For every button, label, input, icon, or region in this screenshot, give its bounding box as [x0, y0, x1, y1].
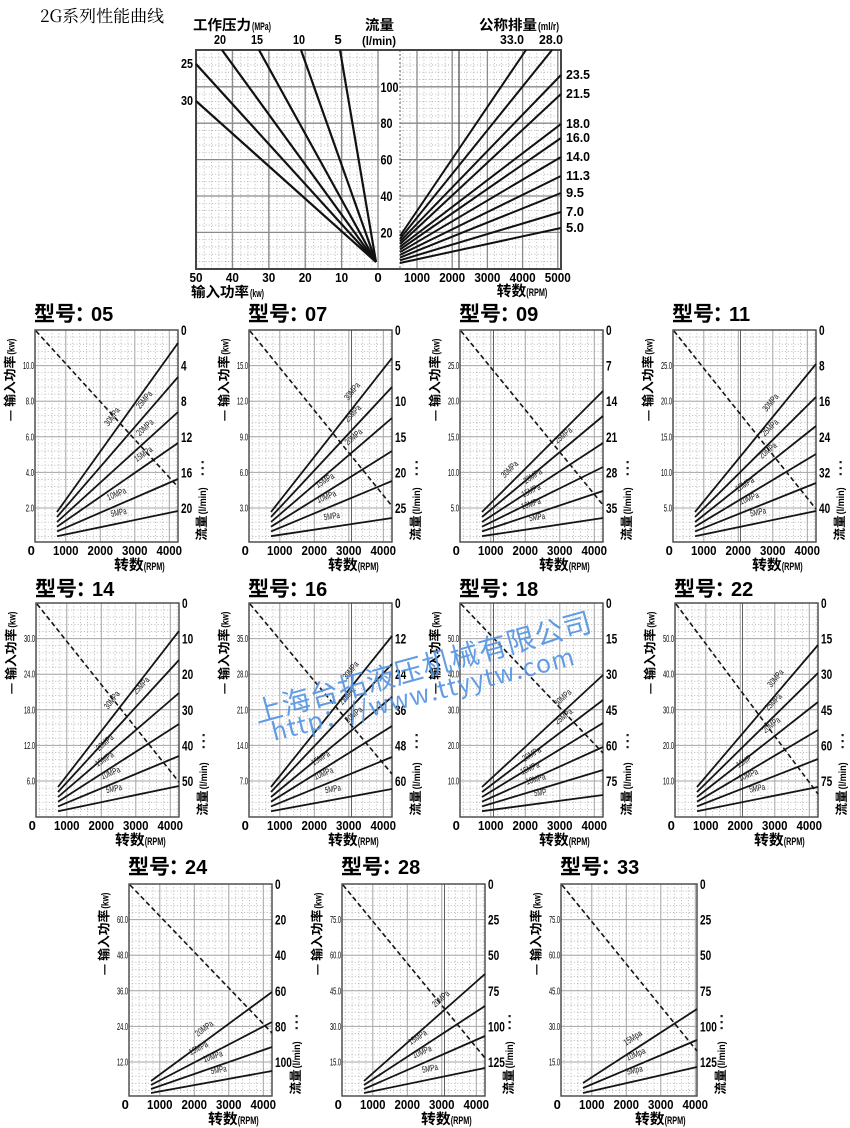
svg-text:45: 45	[821, 703, 833, 718]
svg-text:1000: 1000	[360, 1097, 386, 1112]
svg-text:5MPa: 5MPa	[323, 510, 340, 522]
svg-text:8: 8	[181, 394, 187, 409]
svg-text:8.0: 8.0	[26, 397, 34, 408]
svg-text:35: 35	[606, 501, 618, 516]
svg-text:30: 30	[262, 270, 275, 285]
svg-text:7: 7	[606, 359, 612, 374]
svg-text:4000: 4000	[464, 1097, 490, 1112]
svg-text:1000: 1000	[404, 270, 430, 285]
svg-text:12.0: 12.0	[117, 1058, 128, 1069]
svg-text:5Mpa: 5Mpa	[626, 1063, 644, 1076]
svg-text:0: 0	[29, 818, 36, 833]
svg-text:4000: 4000	[158, 818, 184, 833]
svg-text:100: 100	[700, 1019, 717, 1034]
svg-text:14.0: 14.0	[566, 149, 590, 164]
svg-text:50: 50	[190, 270, 203, 285]
svg-text:5.0: 5.0	[664, 504, 672, 515]
svg-text:3000: 3000	[336, 543, 362, 558]
svg-text:4000: 4000	[251, 1097, 276, 1112]
svg-text:2000: 2000	[439, 270, 465, 285]
svg-text:10MPa: 10MPa	[99, 764, 121, 781]
svg-text:6.0: 6.0	[240, 468, 248, 479]
svg-text:3000: 3000	[547, 543, 573, 558]
svg-text:0: 0	[28, 543, 35, 558]
svg-text:20: 20	[275, 913, 286, 928]
svg-text:5MPa: 5MPa	[528, 511, 545, 523]
svg-text:1000: 1000	[54, 818, 80, 833]
svg-text:40: 40	[381, 189, 393, 204]
svg-text:5MPa: 5MPa	[748, 782, 766, 795]
svg-text:3000: 3000	[123, 818, 149, 833]
svg-text:20.0: 20.0	[448, 397, 459, 408]
svg-text:2000: 2000	[728, 818, 754, 833]
svg-text:40: 40	[275, 948, 286, 963]
svg-text:0: 0	[275, 877, 281, 892]
svg-text:1000: 1000	[267, 543, 293, 558]
svg-text:6.0: 6.0	[26, 432, 34, 443]
svg-text:1000: 1000	[693, 818, 719, 833]
svg-text:28.0: 28.0	[539, 32, 563, 47]
svg-text:75: 75	[821, 774, 833, 789]
svg-text:0: 0	[606, 323, 612, 338]
svg-text:3.0: 3.0	[240, 504, 248, 515]
svg-text:15.0: 15.0	[549, 1058, 560, 1069]
svg-text:15: 15	[821, 632, 833, 647]
svg-text:05: 05	[91, 304, 113, 326]
svg-text:125: 125	[488, 1055, 505, 1070]
svg-text:12.0: 12.0	[237, 397, 248, 408]
svg-text:18.0: 18.0	[24, 705, 35, 716]
svg-text:3000: 3000	[336, 818, 362, 833]
svg-text:100: 100	[488, 1019, 505, 1034]
svg-text:09: 09	[516, 304, 538, 326]
svg-text:1000: 1000	[478, 543, 504, 558]
svg-text:0: 0	[242, 543, 249, 558]
svg-text:2000: 2000	[614, 1097, 640, 1112]
svg-text:2000: 2000	[302, 818, 328, 833]
svg-text:20.0: 20.0	[661, 397, 672, 408]
svg-text:0: 0	[335, 1097, 342, 1112]
svg-text:30.0: 30.0	[330, 1022, 341, 1033]
svg-text:75.0: 75.0	[330, 915, 341, 926]
svg-text:80: 80	[275, 1019, 286, 1034]
svg-text:24.0: 24.0	[117, 1022, 128, 1033]
svg-text:7.0: 7.0	[566, 204, 584, 219]
svg-text:36.0: 36.0	[117, 986, 128, 997]
svg-text:20: 20	[299, 270, 312, 285]
svg-text:15.0: 15.0	[661, 432, 672, 443]
svg-text:1000: 1000	[478, 818, 504, 833]
svg-text:3000: 3000	[474, 270, 500, 285]
svg-text:0: 0	[700, 877, 706, 892]
svg-text:18.0: 18.0	[566, 116, 590, 131]
svg-text:2000: 2000	[395, 1097, 421, 1112]
svg-text:20: 20	[181, 501, 192, 516]
svg-text:4000: 4000	[371, 543, 397, 558]
svg-text:5MPa: 5MPa	[210, 1063, 228, 1076]
svg-text:10.0: 10.0	[661, 468, 672, 479]
svg-text:14: 14	[606, 394, 618, 409]
svg-text:3000: 3000	[429, 1097, 455, 1112]
svg-text:0: 0	[554, 1097, 561, 1112]
svg-text:10MPa: 10MPa	[105, 485, 127, 502]
svg-text:75: 75	[700, 984, 712, 999]
svg-text:4.0: 4.0	[26, 468, 34, 479]
svg-text:30.0: 30.0	[549, 1022, 560, 1033]
svg-text:16.0: 16.0	[566, 130, 590, 145]
svg-text:25: 25	[395, 501, 407, 516]
svg-text:3000: 3000	[760, 543, 786, 558]
svg-text:9.0: 9.0	[240, 432, 248, 443]
svg-text:1000: 1000	[53, 543, 79, 558]
svg-text:14: 14	[92, 579, 115, 601]
svg-text:4000: 4000	[683, 1097, 709, 1112]
svg-text:24: 24	[819, 430, 831, 445]
svg-text:3000: 3000	[648, 1097, 674, 1112]
svg-text:32: 32	[819, 465, 830, 480]
svg-text:0: 0	[819, 323, 825, 338]
svg-text:16: 16	[181, 465, 193, 480]
svg-text:30: 30	[821, 667, 832, 682]
svg-text:5MPa: 5MPa	[421, 1062, 439, 1075]
svg-text:28: 28	[398, 857, 420, 879]
svg-text:1000: 1000	[579, 1097, 605, 1112]
svg-text:5MPa: 5MPa	[110, 506, 128, 519]
svg-text:15: 15	[251, 32, 263, 47]
svg-text:5: 5	[334, 32, 341, 47]
svg-text:2000: 2000	[88, 543, 114, 558]
svg-text:60.0: 60.0	[117, 915, 128, 926]
svg-text:11: 11	[729, 304, 750, 326]
svg-text:25: 25	[700, 913, 712, 928]
svg-text:50: 50	[700, 948, 711, 963]
svg-text:25.0: 25.0	[448, 361, 459, 372]
svg-text:1000: 1000	[267, 818, 293, 833]
svg-text:15: 15	[395, 430, 407, 445]
svg-text:4000: 4000	[510, 270, 536, 285]
svg-text:75.0: 75.0	[549, 915, 560, 926]
svg-text:10MPa: 10MPa	[411, 1043, 433, 1060]
svg-text:100: 100	[275, 1055, 292, 1070]
svg-text:12.0: 12.0	[24, 741, 35, 752]
svg-text:2000: 2000	[89, 818, 115, 833]
svg-text:33: 33	[617, 857, 639, 879]
svg-text:1000: 1000	[147, 1097, 173, 1112]
svg-text:0: 0	[242, 818, 249, 833]
svg-text:15.0: 15.0	[330, 1058, 341, 1069]
svg-text:15.0: 15.0	[448, 432, 459, 443]
svg-text:25.0: 25.0	[661, 361, 672, 372]
svg-text:10.0: 10.0	[448, 468, 459, 479]
svg-text:4000: 4000	[371, 818, 397, 833]
svg-text:45.0: 45.0	[549, 986, 560, 997]
svg-text:10Mpa: 10Mpa	[625, 1046, 647, 1063]
svg-text:0: 0	[395, 323, 401, 338]
svg-text:0: 0	[453, 818, 460, 833]
svg-text:1000: 1000	[691, 543, 717, 558]
svg-text:50: 50	[488, 948, 499, 963]
svg-text:2000: 2000	[182, 1097, 208, 1112]
svg-text:2000: 2000	[726, 543, 752, 558]
svg-text:5.0: 5.0	[451, 504, 459, 515]
svg-text:2000: 2000	[513, 818, 539, 833]
svg-text:15.0: 15.0	[237, 361, 248, 372]
svg-text:2000: 2000	[513, 543, 539, 558]
svg-text:10.0: 10.0	[23, 361, 34, 372]
svg-text:0: 0	[453, 543, 460, 558]
svg-text:23.5: 23.5	[566, 67, 590, 82]
svg-text:25: 25	[488, 913, 500, 928]
svg-text:3000: 3000	[547, 818, 573, 833]
svg-text:10MPa: 10MPa	[315, 488, 337, 505]
svg-text:10MPa: 10MPa	[738, 490, 760, 507]
svg-text:60.0: 60.0	[330, 951, 341, 962]
svg-text:60: 60	[381, 153, 393, 168]
svg-text:100: 100	[381, 80, 399, 95]
svg-text:4000: 4000	[797, 818, 823, 833]
svg-text:0: 0	[666, 543, 673, 558]
svg-text:4000: 4000	[157, 543, 183, 558]
svg-text:4000: 4000	[582, 543, 608, 558]
svg-text:4: 4	[181, 359, 187, 374]
svg-text:20: 20	[395, 465, 406, 480]
svg-text:20: 20	[381, 225, 393, 240]
svg-text:28: 28	[606, 465, 618, 480]
svg-text:25: 25	[181, 56, 193, 71]
svg-text:10: 10	[293, 32, 305, 47]
svg-text:0: 0	[181, 323, 187, 338]
svg-text:07: 07	[305, 304, 327, 326]
svg-text:40: 40	[226, 270, 239, 285]
svg-text:10: 10	[335, 270, 348, 285]
svg-text:4000: 4000	[582, 818, 608, 833]
svg-text:0: 0	[668, 818, 675, 833]
svg-text:6.0: 6.0	[27, 777, 35, 788]
svg-text:3000: 3000	[762, 818, 788, 833]
svg-text:(MPa): (MPa)	[252, 21, 271, 33]
svg-text:0: 0	[374, 270, 381, 285]
svg-text:4000: 4000	[795, 543, 821, 558]
svg-text:3000: 3000	[122, 543, 148, 558]
svg-text:5000: 5000	[545, 270, 571, 285]
svg-text:40: 40	[819, 501, 830, 516]
svg-text:125: 125	[700, 1055, 717, 1070]
svg-text:16: 16	[819, 394, 831, 409]
svg-text:21: 21	[606, 430, 618, 445]
svg-text:33.0: 33.0	[500, 32, 524, 47]
svg-text:24.0: 24.0	[24, 670, 35, 681]
svg-text:(l/min): (l/min)	[362, 36, 396, 48]
svg-text:10: 10	[395, 394, 406, 409]
svg-text:8: 8	[819, 359, 825, 374]
svg-text:80: 80	[381, 116, 393, 131]
svg-text:0: 0	[821, 596, 827, 611]
svg-text:45.0: 45.0	[330, 986, 341, 997]
svg-text:30: 30	[181, 93, 193, 108]
svg-text:60.0: 60.0	[549, 951, 560, 962]
svg-text:20: 20	[214, 32, 226, 47]
svg-text:60: 60	[821, 738, 832, 753]
svg-text:0: 0	[488, 877, 494, 892]
svg-text:5.0: 5.0	[566, 220, 584, 235]
svg-text:21.5: 21.5	[566, 86, 590, 101]
svg-text:2.0: 2.0	[26, 504, 34, 515]
svg-text:30.0: 30.0	[24, 634, 35, 645]
svg-text:5MPa: 5MPa	[749, 506, 767, 519]
svg-text:3000: 3000	[216, 1097, 242, 1112]
svg-text:48.0: 48.0	[117, 951, 128, 962]
svg-text:11.3: 11.3	[566, 168, 590, 183]
svg-text:5: 5	[395, 359, 401, 374]
svg-text:60: 60	[275, 984, 286, 999]
svg-text:(ml/r): (ml/r)	[538, 21, 559, 33]
svg-text:75: 75	[488, 984, 500, 999]
svg-text:12: 12	[181, 430, 192, 445]
svg-text:9.5: 9.5	[566, 185, 584, 200]
svg-text:0: 0	[122, 1097, 129, 1112]
svg-text:2000: 2000	[302, 543, 328, 558]
svg-text:24: 24	[185, 857, 208, 879]
